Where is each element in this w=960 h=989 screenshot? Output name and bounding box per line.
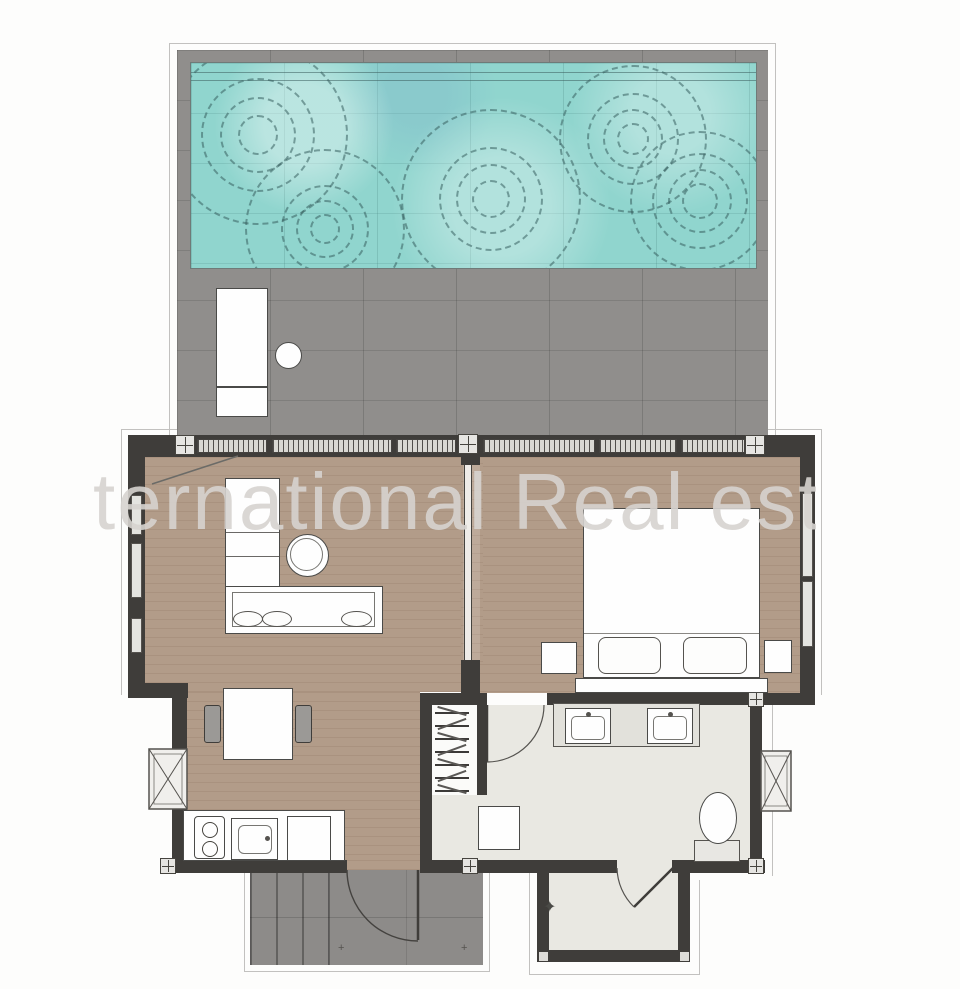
hall-north-wall [420,693,487,705]
nightstand-right [764,640,792,673]
west-step-wall [128,683,188,698]
deck-outline-right [775,43,776,442]
hanger-icon [432,718,477,731]
faucet-icon [668,712,673,717]
plant-marker-icon: ✦ [543,900,556,916]
small-room-outline-right [699,880,700,975]
hanger-icon [432,744,477,757]
sun-lounger [216,288,268,417]
sofa-cushion [341,611,372,627]
hanger-icon [432,731,477,744]
terrace-survey-mark: + [461,943,467,954]
faucet-icon [265,836,270,841]
coffee-table-inner [290,538,323,571]
living-window-band [197,439,267,453]
sofa-cushion [262,611,292,627]
shower-stool [478,806,520,850]
bedroom-window-band [599,439,677,453]
basin [571,716,605,740]
terrace-outline-bottom [244,971,490,972]
pool-ripple [682,183,718,219]
bathroom-sink-right [647,708,693,744]
headboard [575,678,768,693]
nightstand-left [541,642,577,674]
pillow [598,637,661,674]
partition-stub-bottom [461,660,480,693]
terrace-outline-right [489,870,490,971]
faucet-icon [586,712,591,717]
column-marker [745,435,765,455]
counter-cabinet [287,816,331,861]
hanger-icon [432,770,477,783]
lower-room-door-gap [617,861,672,873]
entry-terrace [250,870,483,965]
sofa-cushion [233,611,263,627]
bedroom-window-band [483,439,595,453]
terrace-tile-line [250,917,483,918]
planter-box-west [148,748,188,815]
kitchen-south-wall [170,860,347,873]
column-marker [748,691,764,707]
bed [583,508,760,678]
dining-table [223,688,293,760]
deck-outline-left [169,43,170,442]
burner [202,822,218,838]
living-window-band [272,439,392,453]
west-window [131,543,142,598]
living-window-band [396,439,456,453]
bed-sheet-line [584,633,759,634]
lower-room-south-wall [537,950,690,962]
south-wall-left [420,860,617,873]
west-window [131,495,142,535]
swimming-pool [190,62,757,269]
dining-chair-left [204,705,221,743]
hall-west-wall [420,705,432,860]
pool-ripple [238,115,278,155]
basin [653,716,687,740]
terrace-outline-left [244,870,245,971]
wardrobe-east-wall [477,705,487,795]
pool-ripple [617,123,649,155]
dining-chair-right [295,705,312,743]
sliding-door-partition [464,465,472,660]
wall-corner-pad [680,952,689,961]
lower-room-floor [549,873,678,950]
deck-outline-top [169,43,776,44]
small-room-outline-left [529,866,530,974]
deck-side-table [275,342,302,369]
east-window [802,581,813,647]
column-marker [748,858,764,874]
hanger-icon [432,757,477,770]
burner [202,841,218,857]
house-outline-right [821,429,822,695]
west-window [131,618,142,653]
hanger-icon [432,705,477,718]
pillow [683,637,747,674]
wardrobe [432,705,477,795]
pool-ripple [472,180,510,218]
bathroom-sink-left [565,708,611,744]
small-room-outline-bottom [529,974,700,975]
toilet-bowl [699,792,737,844]
coffee-table [286,534,329,577]
column-marker [175,435,195,455]
chaise-division [226,532,279,533]
house-outline-left [121,429,122,695]
planter-box-east [760,750,792,817]
partition-stub-top [461,457,480,465]
terrace-survey-mark: + [338,943,344,954]
kitchen-sink [231,818,278,860]
lower-room-east-wall [678,862,690,962]
bedroom-window-band [681,439,745,453]
floor-plan: + + [0,0,960,989]
east-window [802,493,813,577]
wall-corner-pad [539,952,548,961]
pool-ripple [310,214,340,244]
hanger-icon [432,783,477,796]
lounger-backrest-line [217,386,267,388]
cooktop [194,816,225,859]
column-marker [160,858,176,874]
sofa-chaise-unit [225,478,280,587]
column-marker [458,434,478,454]
chaise-division [226,556,279,557]
column-marker [462,858,478,874]
